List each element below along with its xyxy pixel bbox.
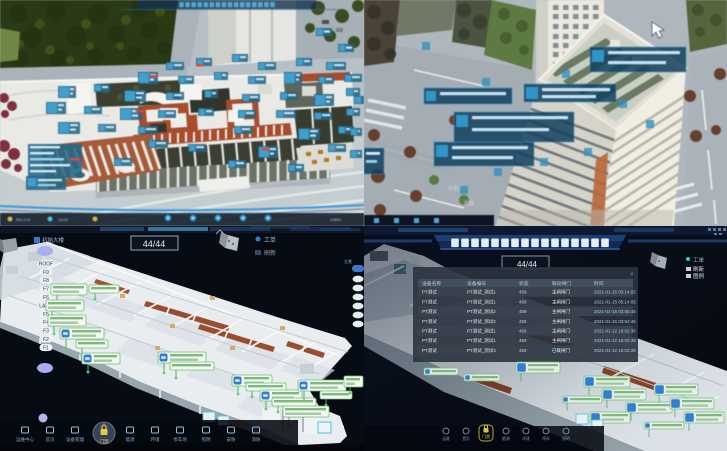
svg-text:主闸闸门: 主闸闸门: [552, 308, 570, 315]
svg-text:设备名称: 设备名称: [422, 280, 441, 287]
svg-text:PT测试_测试2: PT测试_测试2: [467, 308, 496, 315]
svg-text:459: 459: [519, 299, 527, 304]
svg-text:主闸闸门: 主闸闸门: [552, 318, 570, 325]
svg-text:PT测试_测试1: PT测试_测试1: [467, 298, 496, 305]
svg-text:601-2-8: 601-2-8: [16, 217, 31, 222]
svg-text:2021-01-15 03:55:45: 2021-01-15 03:55:45: [594, 309, 636, 314]
svg-text:44/44: 44/44: [143, 239, 166, 249]
svg-text:首页: 首页: [462, 436, 470, 441]
svg-text:工单: 工单: [264, 236, 276, 244]
svg-text:全景: 全景: [344, 258, 352, 264]
svg-text:环境: 环境: [522, 436, 530, 441]
svg-text:459: 459: [519, 348, 527, 353]
svg-text:图例: 图例: [693, 272, 705, 280]
svg-text:459: 459: [519, 338, 527, 343]
svg-text:主闸闸门: 主闸闸门: [552, 337, 570, 344]
svg-text:初始大楼: 初始大楼: [42, 236, 65, 244]
svg-text:刷新: 刷新: [693, 265, 705, 273]
svg-text:设备管理: 设备管理: [66, 436, 84, 443]
svg-text:PT测试_测试1: PT测试_测试1: [467, 289, 496, 296]
svg-text:消防: 消防: [252, 436, 261, 443]
svg-text:门禁: 门禁: [100, 438, 109, 445]
svg-text:2021-01-15 03:54:46: 2021-01-15 03:54:46: [594, 319, 636, 324]
svg-text:PT测试: PT测试: [422, 308, 437, 315]
svg-text:主闸闸门: 主闸闸门: [552, 298, 570, 305]
svg-text:主闸闸门: 主闸闸门: [552, 328, 570, 335]
svg-text:联动闸门: 联动闸门: [552, 280, 571, 287]
svg-text:街路: 街路: [464, 200, 474, 207]
svg-text:2021-01-15 05:14:05: 2021-01-15 05:14:05: [594, 290, 636, 295]
svg-text:PT测试: PT测试: [422, 289, 437, 296]
svg-text:PT测试_测试1: PT测试_测试1: [467, 328, 496, 335]
svg-text:13800: 13800: [330, 217, 342, 222]
svg-text:PT测试: PT测试: [422, 298, 437, 305]
svg-text:459: 459: [519, 309, 527, 314]
svg-text:ROOF: ROOF: [39, 261, 53, 267]
svg-text:状态: 状态: [519, 280, 529, 287]
svg-text:2021-01-12 16:02:38: 2021-01-12 16:02:38: [594, 348, 636, 353]
svg-text:主闸闸门: 主闸闸门: [552, 289, 570, 296]
svg-text:459: 459: [519, 319, 527, 324]
svg-text:停车: 停车: [542, 436, 550, 441]
svg-text:运维中心: 运维中心: [16, 436, 34, 443]
svg-text:PT测试_测试2: PT测试_测试2: [467, 318, 496, 325]
svg-text:PT测试: PT测试: [422, 328, 437, 335]
svg-text:PT测试: PT测试: [422, 347, 437, 354]
svg-text:459: 459: [519, 329, 527, 334]
svg-text:PT测试: PT测试: [422, 318, 437, 325]
svg-text:环境: 环境: [151, 436, 160, 443]
svg-text:PT测试: PT测试: [422, 337, 437, 344]
svg-text:2021-01-12 16:02:38: 2021-01-12 16:02:38: [594, 329, 636, 334]
svg-text:设备编号: 设备编号: [467, 280, 486, 287]
svg-text:首页: 首页: [46, 436, 55, 443]
svg-text:能源: 能源: [502, 436, 510, 441]
svg-text:工单: 工单: [693, 256, 705, 264]
svg-text:时间: 时间: [594, 280, 604, 287]
svg-text:能源: 能源: [126, 436, 135, 443]
svg-text:2021-01-12 16:02:38: 2021-01-12 16:02:38: [594, 338, 636, 343]
svg-text:15:32: 15:32: [58, 217, 69, 222]
svg-text:刷新: 刷新: [264, 249, 276, 257]
svg-text:安防: 安防: [227, 436, 236, 443]
svg-text:×: ×: [630, 272, 634, 278]
svg-text:运维: 运维: [442, 436, 450, 441]
svg-text:PT测试_测试3: PT测试_测试3: [467, 347, 496, 354]
svg-text:照明: 照明: [562, 436, 570, 441]
svg-text:2021-01-15 05:14:05: 2021-01-15 05:14:05: [594, 299, 636, 304]
svg-text:PT测试_测试1: PT测试_测试1: [467, 337, 496, 344]
svg-text:已联闸门: 已联闸门: [552, 347, 570, 354]
svg-text:459: 459: [519, 290, 527, 295]
svg-text:停车场: 停车场: [173, 436, 187, 443]
svg-text:门禁: 门禁: [482, 433, 490, 439]
